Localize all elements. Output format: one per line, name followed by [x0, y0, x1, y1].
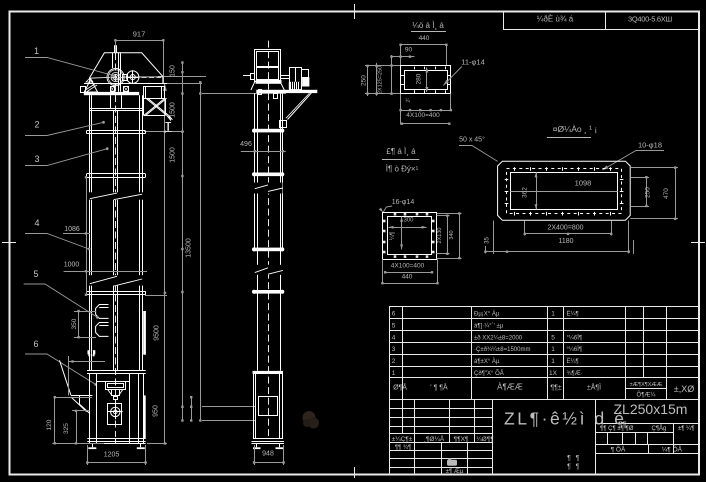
svg-text:948: 948: [262, 451, 274, 458]
svg-text:°¼6Ï¶: °¼6Ï¶: [567, 334, 583, 341]
svg-text:á¶]·¼°`' ±µ: á¶]·¼°`' ±µ: [474, 323, 504, 329]
svg-text:¼ðÈ ù¾ á: ¼ðÈ ù¾ á: [537, 15, 574, 24]
svg-text:¶ ÕÅ: ¶ ÕÅ: [611, 445, 626, 454]
svg-text:1180: 1180: [558, 238, 573, 245]
svg-text:¼¶: ¼¶: [390, 232, 396, 240]
svg-text:340: 340: [449, 230, 455, 239]
svg-text:±,XØ: ±,XØ: [674, 384, 694, 394]
svg-text:90: 90: [405, 47, 413, 54]
svg-text:Ì¶ ò Ðý×¹: Ì¶ ò Ðý×¹: [386, 165, 419, 174]
svg-text:¶¶ Ç¶ ±¶ ¶Ø: ¶¶ Ç¶ ±¶ ¶Ø: [600, 426, 634, 432]
svg-text:Ë¼¶: Ë¼¶: [567, 311, 579, 318]
svg-text:±¶ Æµ: ±¶ Æµ: [446, 469, 464, 475]
svg-text:2X400=800: 2X400=800: [547, 225, 583, 232]
svg-text:2: 2: [34, 120, 39, 130]
svg-text:11-φ14: 11-φ14: [461, 58, 485, 67]
svg-text:á¶±X° Àµ: á¶±X° Àµ: [474, 358, 500, 365]
svg-text:280: 280: [416, 73, 423, 84]
svg-text:362: 362: [522, 187, 529, 198]
svg-text:£¶ á Ì¸ á: £¶ á Ì¸ á: [386, 147, 416, 156]
svg-text:1: 1: [551, 358, 555, 365]
svg-text:Ë¼¶: Ë¼¶: [567, 358, 579, 365]
svg-text:5: 5: [33, 269, 38, 279]
svg-text:¶¶ ¾¶: ¶¶ ¾¶: [395, 445, 411, 451]
svg-text:5: 5: [392, 322, 396, 329]
svg-text:¼: ¼: [405, 99, 410, 105]
svg-text:1: 1: [551, 311, 555, 318]
svg-text:1: 1: [551, 346, 555, 353]
svg-text:4: 4: [392, 334, 396, 341]
svg-text:350: 350: [71, 318, 78, 329]
svg-text:¤Ø¼Ào ¸ ¹ ¡: ¤Ø¼Ào ¸ ¹ ¡: [553, 124, 597, 134]
svg-text:9500: 9500: [154, 325, 161, 341]
svg-text:3: 3: [34, 154, 39, 164]
svg-text:6: 6: [392, 311, 396, 318]
svg-text:440: 440: [402, 274, 413, 281]
svg-text:Çð¶"X° ÕÅ: Çð¶"X° ÕÅ: [474, 370, 504, 377]
svg-text:4X100=400: 4X100=400: [406, 112, 440, 119]
svg-text:50 x 45°: 50 x 45°: [459, 136, 485, 144]
svg-text:¶: ¶: [567, 464, 571, 471]
svg-text:35: 35: [485, 237, 491, 244]
svg-text:1205: 1205: [104, 452, 120, 459]
svg-text:¶¶X¶: ¶¶X¶: [454, 436, 469, 443]
svg-text:150: 150: [170, 65, 177, 77]
svg-text:¼ö á Ì¸ á: ¼ö á Ì¸ á: [412, 21, 444, 30]
svg-text:Ç¶Åg: Ç¶Åg: [652, 425, 667, 432]
svg-text:440: 440: [419, 35, 430, 42]
svg-text:À¶ÆÆ: À¶ÆÆ: [497, 383, 523, 392]
svg-text:2X125=250: 2X125=250: [378, 66, 384, 94]
svg-text:16-φ14: 16-φ14: [392, 199, 415, 206]
svg-text:±Å¶Ì: ±Å¶Ì: [587, 383, 601, 392]
svg-text:¼Ø¶¶: ¼Ø¶¶: [476, 436, 494, 443]
svg-text:300: 300: [403, 218, 414, 224]
svg-text:2: 2: [392, 358, 396, 365]
svg-text:¶: ¶: [567, 455, 571, 462]
svg-text:1500: 1500: [170, 147, 177, 163]
svg-text:917: 917: [133, 30, 146, 39]
svg-text:Ø¶Å: Ø¶Å: [393, 383, 407, 392]
svg-text:±¶ ¼¶: ±¶ ¼¶: [678, 426, 694, 432]
svg-text:950: 950: [153, 405, 160, 417]
svg-text:Ðµ¡X° Àµ: Ðµ¡X° Àµ: [474, 311, 500, 318]
svg-text:2X130: 2X130: [437, 228, 443, 244]
svg-text:¶: ¶: [576, 464, 580, 471]
svg-text:4X100=400: 4X100=400: [391, 263, 425, 270]
svg-text:¸¶Ø¼Å: ¸¶Ø¼Å: [424, 434, 445, 443]
svg-text:1098: 1098: [575, 179, 592, 188]
svg-text:325: 325: [63, 423, 70, 434]
svg-text:250: 250: [361, 75, 368, 86]
svg-text:3Q400-5.6XШ: 3Q400-5.6XШ: [628, 15, 672, 24]
svg-text:10-φ18: 10-φ18: [638, 141, 662, 150]
svg-text:470: 470: [663, 188, 670, 199]
svg-text:1086: 1086: [64, 226, 80, 233]
svg-text:1X: 1X: [549, 370, 558, 377]
svg-text:¶¶±: ¶¶±: [550, 385, 562, 392]
svg-text:' ¶ ¶Å: ' ¶ ¶Å: [430, 383, 448, 392]
svg-text:¼¶ ÕÅ: ¼¶ ÕÅ: [662, 445, 683, 454]
svg-text:6: 6: [33, 339, 38, 349]
svg-text:±ð XX2¼±8=2000: ±ð XX2¼±8=2000: [474, 334, 523, 341]
svg-text:°¼6Ï¶: °¼6Ï¶: [567, 346, 583, 353]
svg-text:5: 5: [551, 334, 555, 341]
svg-text:120: 120: [46, 419, 53, 430]
svg-text:¶: ¶: [576, 455, 580, 462]
svg-text:4: 4: [34, 218, 39, 228]
svg-text:±¼Ç¶±: ±¼Ç¶±: [392, 436, 413, 443]
svg-text:±Æ¶X¶XÆÆ: ±Æ¶X¶XÆÆ: [630, 382, 663, 388]
svg-text:Õ¶Æ¼: Õ¶Æ¼: [637, 392, 657, 399]
svg-text:496: 496: [240, 141, 252, 148]
svg-text:3: 3: [392, 346, 396, 353]
svg-text:1: 1: [392, 370, 396, 377]
svg-text:13500: 13500: [186, 238, 193, 258]
svg-text:¾¶Æ·: ¾¶Æ·: [567, 371, 583, 377]
svg-text:1: 1: [34, 46, 39, 56]
svg-text:·Ç±ð¾¼±8=1500mm: ·Ç±ð¾¼±8=1500mm: [474, 346, 530, 353]
svg-text:1000: 1000: [64, 262, 80, 269]
svg-text:1500: 1500: [170, 102, 177, 118]
svg-text:ZL250x15m: ZL250x15m: [614, 401, 688, 417]
svg-text:250: 250: [645, 187, 652, 198]
